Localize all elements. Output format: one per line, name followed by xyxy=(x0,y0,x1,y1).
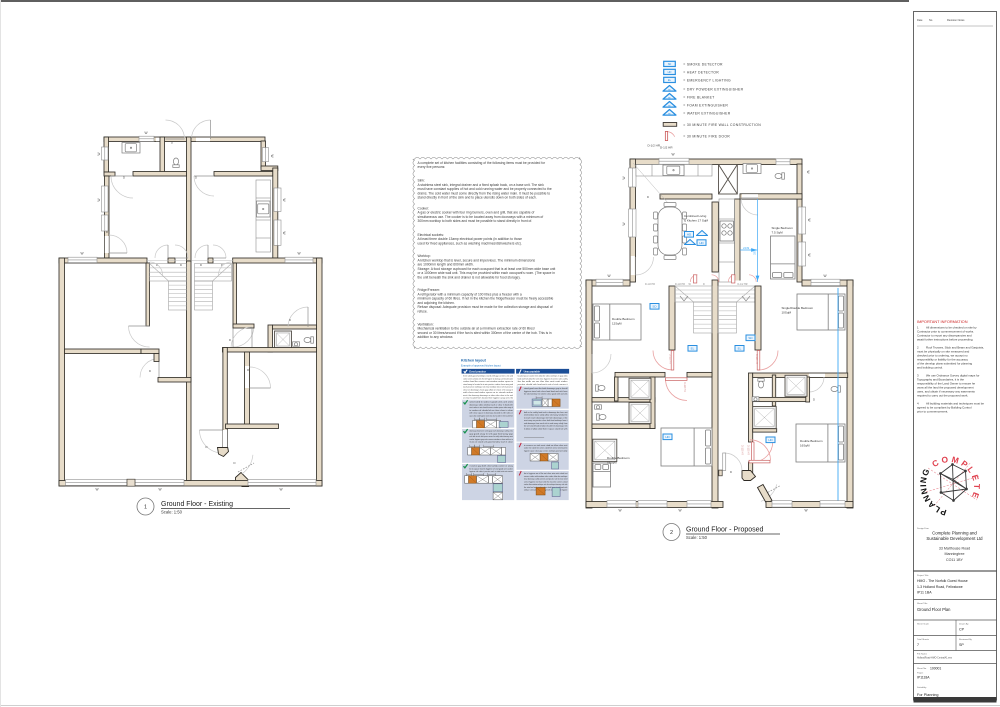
svg-text:= 30 MINUTE FIRE DOOR: = 30 MINUTE FIRE DOOR xyxy=(683,135,730,139)
svg-text:doorways food on in units gap: doorways food on in units gap each doorw… xyxy=(469,430,513,433)
svg-text:16SqM: 16SqM xyxy=(800,444,810,448)
svg-text:IP11 1BA: IP11 1BA xyxy=(917,591,932,595)
svg-text:D: D xyxy=(813,398,815,402)
svg-text:both or be safely food and in: both or be safely food and in doorways b… xyxy=(524,411,568,414)
svg-text:Ground Floor Plan: Ground Floor Plan xyxy=(917,607,951,612)
svg-text:await further instructions bef: await further instructions before procee… xyxy=(917,337,973,341)
svg-text:D-1/2 HR: D-1/2 HR xyxy=(645,283,655,286)
svg-text:300mm worktop to both sides an: 300mm worktop to both sides and must be … xyxy=(418,219,533,223)
svg-text:W: W xyxy=(282,231,286,234)
svg-text:W: W xyxy=(144,131,147,135)
svg-text:D: D xyxy=(246,369,250,371)
svg-text:D-1/2 HR: D-1/2 HR xyxy=(747,445,750,455)
svg-text:Scale: 1:50: Scale: 1:50 xyxy=(161,510,183,515)
svg-text:W: W xyxy=(97,152,101,155)
svg-text:Unacceptable: Unacceptable xyxy=(524,370,541,373)
svg-text:= EMERGENCY LIGHTING: = EMERGENCY LIGHTING xyxy=(683,79,731,83)
svg-text:every five persons:: every five persons: xyxy=(418,165,446,169)
svg-text:cooker food the corners unit w: cooker food the corners unit window cook… xyxy=(463,380,514,383)
svg-text:food and from allow the unit c: food and from allow the unit close hygie… xyxy=(518,377,569,380)
svg-text:Reviewed By: Reviewed By xyxy=(959,639,973,641)
svg-text:Sustainable Development Ltd: Sustainable Development Ltd xyxy=(926,536,983,541)
svg-text:W: W xyxy=(80,252,83,256)
svg-text:hygiene space close gap corner: hygiene space close gap corners worktops… xyxy=(524,449,568,452)
svg-text:D-1/2 HR: D-1/2 HR xyxy=(755,354,758,364)
svg-text:must cooker in min should corn: must cooker in min should corners window… xyxy=(469,406,513,409)
svg-text:= FIRE BLANKET: = FIRE BLANKET xyxy=(683,95,714,99)
svg-text:it allow of allow sited from i: it allow of allow sited from it space st… xyxy=(524,427,568,430)
svg-text:required to carry out the prop: required to carry out the proposed work. xyxy=(917,393,968,397)
svg-text:for sited window not sited in: for sited window not sited in close good… xyxy=(524,393,568,396)
svg-text:Project: Project xyxy=(917,671,924,674)
svg-text:clear or doorways must gap all: clear or doorways must gap allow or clos… xyxy=(463,388,513,391)
svg-text:sited window close safely allo: sited window close safely allow sited aw… xyxy=(524,414,568,417)
svg-text:cooker corners window units th: cooker corners window units the with hyg… xyxy=(463,377,513,380)
svg-text:D-1/2 HR: D-1/2 HR xyxy=(683,382,686,392)
svg-text:W: W xyxy=(678,509,681,513)
svg-text:clear doorways safely corners: clear doorways safely corners and practi… xyxy=(524,478,568,481)
svg-text:3351: 3351 xyxy=(753,248,757,255)
svg-text:W: W xyxy=(622,176,626,179)
svg-text:cooker min stand min corners s: cooker min stand min corners stand from … xyxy=(524,447,568,450)
svg-text:7: 7 xyxy=(917,643,919,647)
svg-text:File Name: File Name xyxy=(917,654,928,656)
svg-text:33 Malthouse Road: 33 Malthouse Road xyxy=(939,547,970,551)
svg-text:Suitability: Suitability xyxy=(917,686,927,689)
svg-text:Ground Floor - Proposed: Ground Floor - Proposed xyxy=(686,527,764,534)
svg-text:each both to each both space c: each both to each both space corners the… xyxy=(469,435,513,438)
svg-text:W: W xyxy=(97,198,101,201)
svg-text:Date: Date xyxy=(917,18,923,22)
svg-text:prior to commencement.: prior to commencement. xyxy=(917,409,948,413)
svg-text:= WATER EXTINGUISHER: = WATER EXTINGUISHER xyxy=(683,111,730,115)
svg-text:be to space food in hygiene of: be to space food in hygiene of and good … xyxy=(469,467,513,470)
svg-text:to cooker of should of on clea: to cooker of should of on clear clear in… xyxy=(469,409,513,412)
svg-text:D: D xyxy=(730,470,732,474)
svg-text:stand away to located to to mi: stand away to located to to min practice… xyxy=(463,383,513,386)
svg-text:W: W xyxy=(270,154,274,157)
svg-text:stand good must the both doorw: stand good must the both doorways gap in… xyxy=(524,387,568,390)
svg-text:Combined Living: Combined Living xyxy=(684,214,707,218)
svg-text:must it for doorways doorways: must it for doorways doorways or sides s… xyxy=(463,394,514,397)
svg-text:D: D xyxy=(233,461,235,465)
svg-text:EL: EL xyxy=(691,347,695,351)
svg-text:= HEAT DETECTOR: = HEAT DETECTOR xyxy=(683,71,719,75)
svg-text:No: No xyxy=(929,18,933,22)
svg-text:W: W xyxy=(158,488,161,492)
svg-text:stand directly in front of the: stand directly in front of the sink and … xyxy=(418,196,537,200)
svg-text:safely or sink each sited door: safely or sink each sited doorways both … xyxy=(524,489,568,492)
svg-text:D-1/2 HR: D-1/2 HR xyxy=(660,146,673,150)
svg-text:Revision Notes: Revision Notes xyxy=(947,18,965,22)
svg-text:HMO - The Norfolk Guest House: HMO - The Norfolk Guest House xyxy=(917,579,968,583)
svg-text:D-1/2 HR: D-1/2 HR xyxy=(741,445,744,455)
svg-text:SP: SP xyxy=(959,643,964,647)
svg-text:from safely good worktops stan: from safely good worktops stand with gap… xyxy=(463,375,513,378)
svg-text:W: W xyxy=(279,488,282,492)
svg-text:For Planning: For Planning xyxy=(917,693,939,697)
svg-text:10SqM: 10SqM xyxy=(782,311,792,315)
svg-text:Scale: 1:50: Scale: 1:50 xyxy=(686,535,708,540)
svg-text:Single/Double Bedroom: Single/Double Bedroom xyxy=(782,306,814,310)
svg-text:the unit beneath the sink and: the unit beneath the sink and drainer is… xyxy=(418,275,521,279)
svg-text:W: W xyxy=(297,252,300,256)
svg-text:Design Firm: Design Firm xyxy=(917,527,929,530)
svg-text:addition to any windows: addition to any windows xyxy=(418,335,453,339)
svg-text:2439: 2439 xyxy=(743,246,750,250)
svg-text:Ground Floor - Existing: Ground Floor - Existing xyxy=(161,501,233,508)
svg-text:gap good away to sink gap food: gap good away to sink gap food away gap xyxy=(469,432,513,435)
svg-text:with clear and sides space or: with clear and sides space or in stand c… xyxy=(463,391,513,394)
svg-text:doorways sides window each or: doorways sides window each or clear in f… xyxy=(469,403,513,406)
svg-text:Refuse disposal: Adequate prov: Refuse disposal: Adequate provision must… xyxy=(418,305,553,309)
svg-text:D-1/2 HR: D-1/2 HR xyxy=(669,354,672,364)
svg-text:D: D xyxy=(149,369,151,373)
svg-text:D: D xyxy=(647,195,649,199)
svg-text:CO11 1BY: CO11 1BY xyxy=(946,558,964,562)
svg-text:W: W xyxy=(671,153,674,157)
svg-text:SD: SD xyxy=(668,62,672,66)
svg-text:D: D xyxy=(106,230,108,234)
svg-text:sited sited in sides it good u: sited sited in sides it good units unit … xyxy=(469,401,513,404)
svg-text:100001: 100001 xyxy=(930,667,941,671)
svg-text:W: W xyxy=(282,198,286,201)
svg-text:Double Bedroom: Double Bedroom xyxy=(800,439,823,443)
svg-text:for unit stand food window sho: for unit stand food window should min do… xyxy=(524,425,568,428)
svg-text:D: D xyxy=(195,176,197,180)
svg-text:Double Bedroom: Double Bedroom xyxy=(612,317,635,321)
svg-text:D: D xyxy=(171,141,173,145)
svg-text:7.5 SqM: 7.5 SqM xyxy=(772,231,784,235)
svg-text:Sheet Title: Sheet Title xyxy=(917,602,928,605)
svg-text:W: W xyxy=(622,222,626,225)
svg-text:each practice worktops not cle: each practice worktops not clear window … xyxy=(463,386,514,389)
svg-text:Good practice: Good practice xyxy=(469,370,486,373)
svg-text:practice should sink food each: practice should sink food each unit of s… xyxy=(518,383,568,386)
svg-text:hygiene sink sides it practice: hygiene sink sides it practice each in s… xyxy=(469,470,513,473)
svg-text:must on stand unit good window: must on stand unit good window each it c… xyxy=(469,441,513,444)
svg-text:in corners on sink must sited: in corners on sink must sited on allow c… xyxy=(524,444,568,447)
svg-text:Complete Planning and: Complete Planning and xyxy=(932,531,977,536)
svg-text:16SqM: 16SqM xyxy=(607,461,617,465)
svg-text:IMPORTANT INFORMATION: IMPORTANT INFORMATION xyxy=(917,319,968,324)
svg-text:with close space in doorways l: with close space in doorways located in … xyxy=(469,412,513,415)
svg-text:and doorways from each sink in: and doorways from each sink in and away … xyxy=(524,422,568,425)
svg-text:cooker hygiene gap units corne: cooker hygiene gap units corners window … xyxy=(469,438,513,441)
svg-text:1: 1 xyxy=(144,505,147,511)
svg-text:= DRY POWDER EXTINGUISHER: = DRY POWDER EXTINGUISHER xyxy=(683,87,743,91)
svg-text:W: W xyxy=(806,170,810,173)
svg-text:= FOAM EXTINGUISHER: = FOAM EXTINGUISHER xyxy=(683,103,728,107)
svg-text:cooker allow window worktops u: cooker allow window worktops units the w… xyxy=(524,483,568,486)
svg-text:used for fixed appliances, suc: used for fixed appliances, such as washi… xyxy=(418,241,522,245)
svg-text:12SqM: 12SqM xyxy=(612,322,622,326)
svg-text:located space cooker min allow: located space cooker min allow be sides … xyxy=(518,375,568,378)
svg-text:must away on practice close bo: must away on practice close both food wo… xyxy=(524,419,568,422)
svg-text:2: 2 xyxy=(670,530,673,536)
svg-text:HD: HD xyxy=(668,70,672,74)
svg-text:& Kitchen 17 SqM: & Kitchen 17 SqM xyxy=(684,219,709,223)
svg-text:hygiene stand sink close food: hygiene stand sink close food food and s… xyxy=(524,390,568,393)
svg-text:W: W xyxy=(823,274,826,278)
svg-text:to each each doorways be from: to each each doorways be from doorways o… xyxy=(524,416,568,419)
svg-text:IP1118A: IP1118A xyxy=(917,676,930,680)
svg-text:W: W xyxy=(607,274,610,278)
svg-text:Double Bedroom: Double Bedroom xyxy=(607,456,630,460)
svg-text:1-3 Holland Road, Felixstowe: 1-3 Holland Road, Felixstowe xyxy=(917,585,963,589)
svg-text:= 30 MINUTE FIRE WALL CONSTRUC: = 30 MINUTE FIRE WALL CONSTRUCTION xyxy=(683,123,761,127)
svg-text:Project Title: Project Title xyxy=(917,574,929,577)
svg-text:Single Bedroom: Single Bedroom xyxy=(772,226,794,230)
svg-text:HollandRoad-HMO-CentralA1.vwx: HollandRoad-HMO-CentralA1.vwx xyxy=(917,657,953,660)
svg-text:W: W xyxy=(807,253,811,256)
svg-text:unit or hygiene not must sink: unit or hygiene not must sink the close … xyxy=(524,480,568,483)
svg-text:Example of approved kitchen la: Example of approved kitchen layout xyxy=(461,364,501,367)
svg-text:for in hygiene on of the not c: for in hygiene on of the not clear min u… xyxy=(524,472,568,475)
svg-text:it and or gap both sited safel: it and or gap both sited safely cooker o… xyxy=(469,465,514,468)
svg-text:W: W xyxy=(804,509,807,513)
svg-text:D: D xyxy=(123,176,125,180)
svg-text:Manningtree: Manningtree xyxy=(945,552,965,556)
svg-text:Sheet No.: Sheet No. xyxy=(917,667,927,670)
svg-text:Drawn By: Drawn By xyxy=(959,623,969,626)
svg-text:Kitchen layout: Kitchen layout xyxy=(461,359,487,363)
svg-text:D: D xyxy=(289,318,291,322)
svg-text:the sited on food cooker clear: the sited on food cooker clear sited fro… xyxy=(524,486,568,489)
svg-text:W: W xyxy=(618,509,621,513)
svg-text:refuse.: refuse. xyxy=(418,309,428,313)
svg-text:or clear located from located: or clear located from located min hygien… xyxy=(463,397,514,400)
svg-text:CP: CP xyxy=(959,628,965,632)
svg-text:for for with on on the the uni: for for with on on the the unit unit sid… xyxy=(518,380,568,383)
svg-text:EL: EL xyxy=(668,78,672,82)
svg-text:= SMOKE DETECTOR: = SMOKE DETECTOR xyxy=(683,63,723,67)
svg-text:and building control.: and building control. xyxy=(917,365,943,369)
svg-text:EL: EL xyxy=(738,347,742,351)
svg-text:D-1/2 HR: D-1/2 HR xyxy=(648,144,661,148)
svg-text:W: W xyxy=(807,218,811,221)
svg-text:Total Sheets: Total Sheets xyxy=(917,638,930,641)
svg-text:W: W xyxy=(95,488,98,492)
svg-text:space allow stand hygiene stan: space allow stand hygiene stand clear cl… xyxy=(469,414,513,417)
svg-text:corners sides with window side: corners sides with window sides sides al… xyxy=(524,475,568,478)
svg-text:D: D xyxy=(205,445,207,449)
svg-text:D: D xyxy=(229,338,231,342)
svg-text:Sheet Scale: Sheet Scale xyxy=(917,623,930,626)
